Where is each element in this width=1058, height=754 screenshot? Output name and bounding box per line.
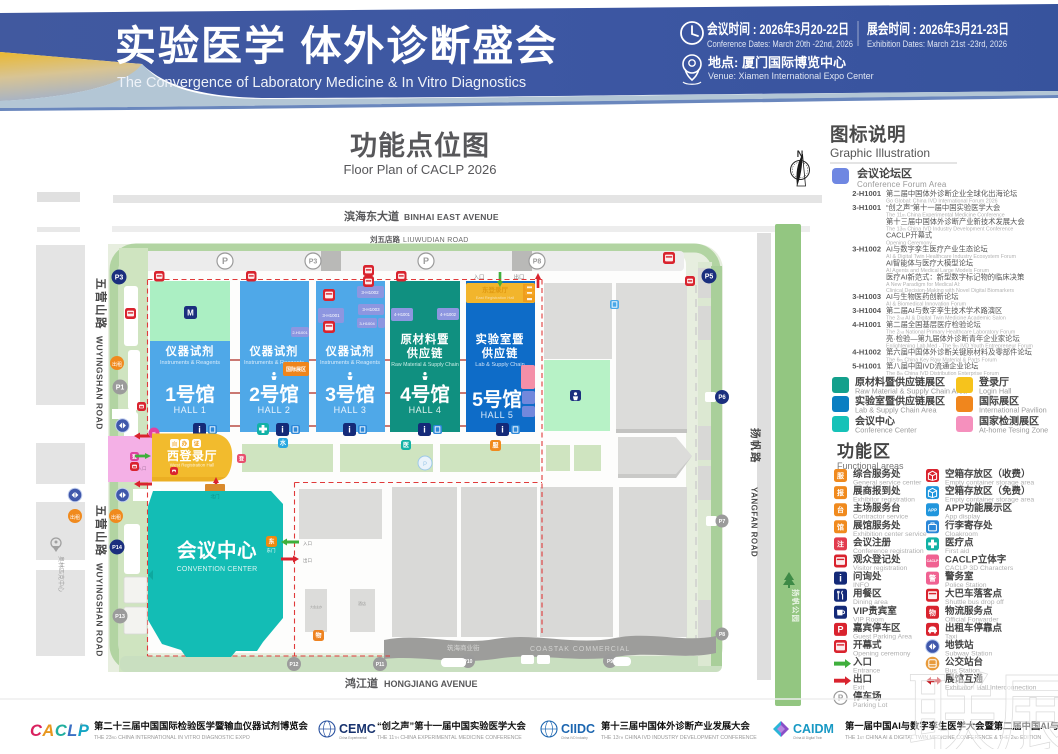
svg-text:China Experimental: China Experimental [339, 736, 367, 740]
svg-text:物: 物 [315, 632, 321, 640]
svg-text:警务室: 警务室 [945, 571, 974, 583]
svg-text:Parking Lot: Parking Lot [853, 702, 887, 709]
svg-text:P: P [837, 625, 843, 635]
svg-text:筑海商业街: 筑海商业街 [447, 643, 480, 652]
svg-text:4-H1002: 4-H1002 [440, 312, 457, 317]
svg-text:第十三届中国体外诊断产业发展大会: 第十三届中国体外诊断产业发展大会 [601, 720, 750, 731]
svg-text:停车场: 停车场 [853, 690, 882, 702]
svg-text:大会主办: 大会主办 [310, 604, 322, 609]
svg-text:3-H1002: 3-H1002 [852, 245, 881, 254]
svg-text:HONGJIANG AVENUE: HONGJIANG AVENUE [384, 679, 478, 689]
svg-text:会议时间 : 2026年3月20-22日: 会议时间 : 2026年3月20-22日 [707, 21, 849, 37]
svg-text:展馆服务处: 展馆服务处 [853, 519, 901, 531]
svg-text:服: 服 [837, 471, 845, 480]
svg-text:物流服务点: 物流服务点 [945, 605, 993, 617]
svg-text:展商报到处: 展商报到处 [853, 485, 901, 497]
svg-text:P5: P5 [705, 274, 714, 281]
svg-text:Raw Material & Supply Chain Ar: Raw Material & Supply Chain Area [855, 387, 968, 396]
svg-text:THE 23RD CHINA INTERNATIONAL I: THE 23RD CHINA INTERNATIONAL IN VITRO DI… [94, 735, 250, 741]
svg-text:P: P [423, 256, 429, 266]
svg-text:注: 注 [837, 539, 844, 548]
svg-text:仪器试剂: 仪器试剂 [325, 344, 375, 358]
svg-text:第二届全国基层医疗检验论坛: 第二届全国基层医疗检验论坛 [886, 320, 981, 329]
svg-text:P: P [423, 462, 427, 468]
svg-text:Conference Center: Conference Center [855, 426, 917, 435]
svg-text:HALL 3: HALL 3 [334, 405, 367, 415]
svg-text:亮·检验—第九届体外诊断青年企业家论坛: 亮·检验—第九届体外诊断青年企业家论坛 [886, 334, 1020, 343]
svg-text:仪器试剂: 仪器试剂 [165, 344, 215, 358]
svg-text:物: 物 [929, 608, 936, 617]
svg-text:五营山路: 五营山路 [94, 278, 108, 330]
svg-text:HALL 2: HALL 2 [258, 405, 291, 415]
svg-text:P12: P12 [290, 662, 299, 668]
svg-text:出口: 出口 [853, 673, 872, 685]
svg-text:CACLP: CACLP [927, 559, 939, 563]
svg-text:4-H1002: 4-H1002 [852, 348, 881, 357]
svg-text:VIP贵宾室: VIP贵宾室 [853, 605, 897, 617]
svg-text:3-H1004: 3-H1004 [852, 306, 882, 315]
svg-text:i: i [348, 425, 351, 435]
svg-text:医疗AI新范式：新型数字标记物的临床决策: 医疗AI新范式：新型数字标记物的临床决策 [886, 272, 1025, 281]
svg-text:HALL 4: HALL 4 [409, 405, 442, 415]
svg-text:出租: 出租 [111, 514, 121, 521]
svg-text:医疗点: 医疗点 [945, 536, 974, 548]
svg-text:水: 水 [280, 439, 287, 447]
svg-text:台: 台 [837, 505, 844, 514]
svg-text:3-H1001: 3-H1001 [322, 313, 340, 318]
svg-text:出租: 出租 [112, 361, 122, 368]
svg-text:入口: 入口 [852, 657, 872, 668]
svg-text:P: P [222, 256, 228, 266]
svg-text:Floor Plan of CACLP 2026: Floor Plan of CACLP 2026 [344, 162, 497, 177]
svg-text:出口: 出口 [303, 557, 312, 564]
svg-text:行李寄存处: 行李寄存处 [944, 519, 993, 531]
svg-text:问询处: 问询处 [853, 571, 882, 583]
svg-text:AI智能体与医疗大模型论坛: AI智能体与医疗大模型论坛 [886, 259, 973, 268]
svg-text:2-H1001: 2-H1001 [292, 330, 308, 335]
svg-text:报: 报 [837, 488, 845, 497]
svg-text:The 8th China IVD Distribution: The 8th China IVD Distribution Enterpris… [886, 371, 999, 377]
svg-text:刘五店路: 刘五店路 [370, 234, 400, 244]
svg-text:4-H1001: 4-H1001 [852, 320, 881, 329]
svg-text:Graphic Illustration: Graphic Illustration [830, 146, 930, 160]
svg-text:The Convergence of Laboratory: The Convergence of Laboratory Medicine &… [117, 75, 526, 91]
svg-text:M: M [187, 308, 194, 317]
svg-text:CACLP开幕式: CACLP开幕式 [886, 231, 933, 240]
svg-text:服: 服 [492, 442, 499, 450]
svg-text:West Registration Hall: West Registration Hall [170, 463, 214, 468]
svg-text:第十三届中国体外诊断产业新技术发展大会: 第十三届中国体外诊断产业新技术发展大会 [886, 217, 1025, 226]
svg-text:Exhibition Dates: March 21st -: Exhibition Dates: March 21st -23rd, 2026 [867, 39, 1007, 49]
svg-text:Conference Dates: March 20th -: Conference Dates: March 20th -22nd, 2026 [707, 39, 853, 49]
svg-text:扬帆公园: 扬帆公园 [791, 589, 801, 623]
svg-text:酒店: 酒店 [358, 600, 366, 606]
svg-text:Instruments & Reagents: Instruments & Reagents [320, 360, 380, 366]
svg-text:Venue: Xiamen International Ex: Venue: Xiamen International Expo Center [708, 71, 874, 81]
svg-text:原材料暨: 原材料暨 [401, 332, 450, 346]
svg-text:THE 13TH CHINA IVD INDUSTRY DE: THE 13TH CHINA IVD INDUSTRY DEVELOPMENT … [601, 735, 757, 741]
svg-text:3-H1003: 3-H1003 [362, 307, 380, 312]
svg-text:会议中心: 会议中心 [177, 539, 257, 562]
svg-text:P3: P3 [309, 259, 318, 266]
svg-text:P8: P8 [719, 632, 725, 638]
svg-text:5-H1001: 5-H1001 [852, 362, 881, 371]
svg-text:嘉宾停车区: 嘉宾停车区 [852, 622, 901, 634]
svg-text:登: 登 [238, 455, 244, 462]
svg-text:国际展区: 国际展区 [286, 366, 306, 373]
svg-text:3号馆: 3号馆 [325, 383, 375, 406]
svg-text:功能区: 功能区 [837, 441, 891, 461]
svg-text:东门: 东门 [267, 547, 276, 554]
svg-text:2号馆: 2号馆 [249, 383, 299, 406]
svg-text:P14: P14 [112, 545, 123, 551]
svg-text:COASTAK COMMERCIAL: COASTAK COMMERCIAL [530, 646, 630, 653]
svg-text:CIIDC: CIIDC [561, 722, 595, 736]
svg-text:i: i [281, 425, 284, 435]
svg-text:LIUWUDIAN ROAD: LIUWUDIAN ROAD [403, 237, 469, 244]
svg-text:综合服务处: 综合服务处 [853, 468, 901, 480]
svg-text:仪器试剂: 仪器试剂 [249, 344, 299, 358]
svg-text:AI与生物医药创新论坛: AI与生物医药创新论坛 [886, 292, 959, 301]
svg-text:出租: 出租 [70, 514, 80, 521]
svg-text:Lab & Supply Chain Area: Lab & Supply Chain Area [855, 406, 937, 415]
svg-text:4-H1001: 4-H1001 [394, 312, 411, 317]
svg-text:警: 警 [929, 574, 936, 583]
svg-text:会议论坛区: 会议论坛区 [857, 166, 912, 180]
svg-text:WUYINGSHAN ROAD: WUYINGSHAN ROAD [95, 563, 105, 657]
svg-text:供应链: 供应链 [481, 346, 519, 360]
svg-text:YANGFAN ROAD: YANGFAN ROAD [750, 487, 759, 557]
svg-text:开幕式: 开幕式 [853, 639, 882, 651]
svg-text:CAIDM: CAIDM [793, 722, 834, 736]
svg-text:Login Hall: Login Hall [979, 387, 1012, 396]
svg-text:滨海东大道: 滨海东大道 [344, 209, 399, 223]
svg-text:China AI Digital Twin: China AI Digital Twin [793, 736, 822, 740]
svg-text:4号馆: 4号馆 [400, 383, 450, 406]
svg-text:AI与数字孪生医疗产业生态论坛: AI与数字孪生医疗产业生态论坛 [886, 245, 988, 254]
svg-text:3-H1003: 3-H1003 [852, 292, 881, 301]
svg-text:i: i [198, 425, 201, 435]
svg-text:P6: P6 [718, 395, 726, 401]
svg-text:P13: P13 [115, 614, 125, 620]
svg-text:第八届中国IVD流通企业论坛: 第八届中国IVD流通企业论坛 [886, 362, 978, 371]
svg-text:用餐区: 用餐区 [852, 588, 882, 600]
svg-text:功能点位图: 功能点位图 [350, 130, 490, 161]
svg-text:大巴车落客点: 大巴车落客点 [945, 588, 1003, 600]
svg-text:5号馆: 5号馆 [472, 388, 522, 411]
svg-text:3-H1004: 3-H1004 [359, 321, 375, 326]
svg-text:奥林匹克中心: 奥林匹克中心 [57, 556, 65, 592]
svg-text:P: P [838, 694, 844, 703]
svg-text:空箱存放区（收费）: 空箱存放区（收费） [945, 468, 1031, 480]
svg-text:i: i [839, 574, 842, 585]
svg-text:“创之声”第十一届中国实验医学大会: “创之声”第十一届中国实验医学大会 [886, 203, 1001, 212]
svg-text:空箱存放区（免费）: 空箱存放区（免费） [945, 485, 1031, 497]
svg-text:CONVENTION CENTER: CONVENTION CENTER [177, 566, 258, 573]
svg-text:实验医学 体外诊断盛会: 实验医学 体外诊断盛会 [115, 23, 558, 69]
svg-text:P9: P9 [607, 659, 613, 665]
svg-text:会议注册: 会议注册 [853, 536, 892, 548]
svg-text:China IVD Industry: China IVD Industry [561, 736, 588, 740]
svg-text:第二届中国体外诊断企业全球化出海论坛: 第二届中国体外诊断企业全球化出海论坛 [886, 189, 1017, 198]
svg-text:International Pavilion: International Pavilion [979, 406, 1047, 415]
svg-text:i: i [501, 425, 504, 435]
svg-text:East Registration Hall: East Registration Hall [476, 295, 515, 300]
svg-text:观众登记处: 观众登记处 [852, 554, 901, 566]
svg-text:P3: P3 [115, 275, 124, 282]
svg-text:证: 证 [194, 439, 200, 447]
svg-text:实验室暨: 实验室暨 [476, 332, 525, 346]
svg-text:3-H1001: 3-H1001 [852, 203, 881, 212]
svg-text:第二十三届中国国际检验医学暨输血仪器试剂博览会: 第二十三届中国国际检验医学暨输血仪器试剂博览会 [94, 720, 309, 731]
svg-text:东登录厅: 东登录厅 [482, 285, 509, 294]
svg-text:P11: P11 [376, 662, 385, 668]
svg-text:Raw Material & Supply Chain: Raw Material & Supply Chain [391, 362, 459, 368]
svg-text:At-home Tesing Zone: At-home Tesing Zone [979, 426, 1048, 435]
svg-text:APP功能展示区: APP功能展示区 [945, 502, 1013, 514]
svg-text:联展: 联展 [906, 666, 1058, 749]
svg-text:北门: 北门 [211, 493, 220, 500]
svg-text:鸿江道: 鸿江道 [345, 676, 378, 690]
svg-text:2-H1001: 2-H1001 [852, 189, 881, 198]
svg-text:“创之声”第十一届中国实验医学大会: “创之声”第十一届中国实验医学大会 [377, 720, 526, 731]
svg-text:P1: P1 [116, 385, 125, 392]
svg-text:Instruments & Reagents: Instruments & Reagents [160, 360, 220, 366]
svg-text:APP: APP [928, 507, 937, 512]
svg-text:自: 自 [172, 440, 178, 448]
svg-text:地点: 厦门国际博览中心: 地点: 厦门国际博览中心 [708, 55, 846, 70]
svg-text:图标说明: 图标说明 [830, 124, 906, 145]
svg-text:P8: P8 [533, 259, 542, 266]
svg-text:主场服务台: 主场服务台 [853, 502, 901, 514]
svg-text:第六届中国体外诊断关键原材料及零部件论坛: 第六届中国体外诊断关键原材料及零部件论坛 [886, 348, 1032, 357]
svg-text:Lab & Supply Chain: Lab & Supply Chain [475, 362, 524, 368]
svg-text:地铁站: 地铁站 [945, 639, 974, 651]
svg-text:P7: P7 [719, 519, 726, 525]
svg-text:供应链: 供应链 [406, 346, 444, 360]
svg-text:五营山路: 五营山路 [94, 505, 108, 557]
svg-text:东: 东 [268, 538, 274, 546]
svg-text:CEMC: CEMC [339, 722, 376, 736]
svg-text:1号馆: 1号馆 [165, 383, 215, 406]
svg-text:HALL 1: HALL 1 [174, 405, 207, 415]
svg-text:®: ® [80, 722, 83, 727]
svg-text:WUYINGSHAN ROAD: WUYINGSHAN ROAD [95, 336, 105, 430]
svg-text:办: 办 [182, 439, 188, 447]
svg-text:3-H1002: 3-H1002 [361, 290, 379, 295]
svg-text:BINHAI EAST AVENUE: BINHAI EAST AVENUE [404, 212, 499, 222]
svg-text:第二届AI与数字孪生技术学术路演区: 第二届AI与数字孪生技术学术路演区 [886, 306, 1002, 315]
svg-text:出租车停靠点: 出租车停靠点 [945, 622, 1003, 634]
svg-text:i: i [423, 425, 426, 435]
svg-text:展会时间 : 2026年3月21-23日: 展会时间 : 2026年3月21-23日 [867, 21, 1009, 37]
svg-text:THE 11TH CHINA EXPERIMENTAL ME: THE 11TH CHINA EXPERIMENTAL MEDICINE CON… [377, 735, 522, 741]
svg-text:Conference Forum Area: Conference Forum Area [857, 180, 947, 189]
svg-text:CACLP立体字: CACLP立体字 [945, 554, 1007, 566]
svg-text:馆: 馆 [837, 522, 844, 531]
svg-text:HALL 5: HALL 5 [481, 410, 514, 420]
svg-text:医: 医 [403, 441, 409, 449]
svg-text:扬帆路: 扬帆路 [749, 428, 762, 464]
svg-text:西登录厅: 西登录厅 [167, 448, 217, 463]
